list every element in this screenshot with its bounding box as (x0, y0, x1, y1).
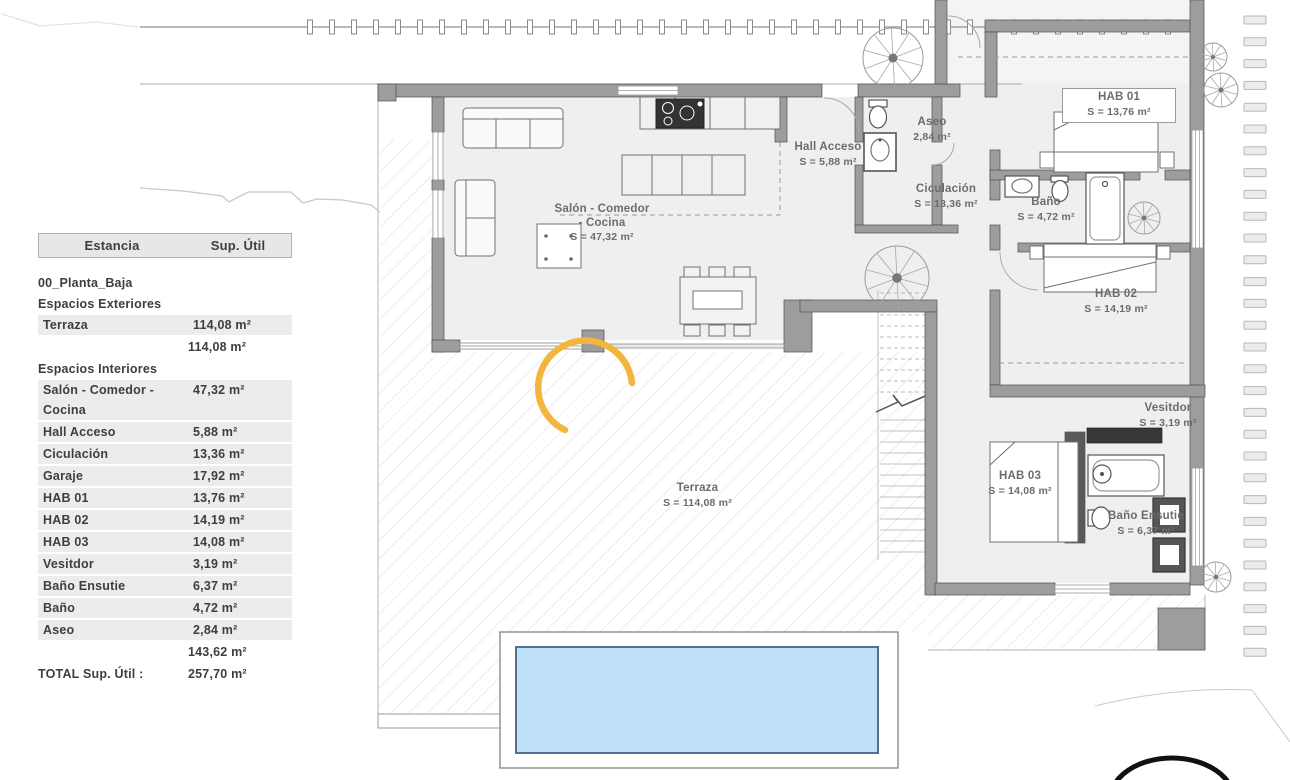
room-label-hab01: HAB 01 S = 13,76 m² (1062, 88, 1176, 123)
fence-post (858, 20, 863, 34)
fence-post (704, 20, 709, 34)
table-group-title: Espacios Exteriores (38, 294, 292, 315)
row-value: 14,19 m² (185, 510, 292, 530)
room-name: Baño Ensutie (1098, 510, 1194, 524)
fence-post (836, 20, 841, 34)
table-row: HAB 0314,08 m² (38, 532, 292, 552)
stepping-stone (1244, 539, 1266, 547)
row-value: 5,88 m² (185, 422, 292, 442)
room-area: S = 4,72 m² (1008, 211, 1084, 225)
terrain-contour-lines (2, 14, 380, 212)
row-value: 2,84 m² (185, 620, 292, 640)
room-area: S = 47,32 m² (552, 231, 652, 245)
row-name: Salón - Comedor - Cocina (38, 380, 185, 420)
room-name: Ciculación (898, 183, 994, 197)
row-value: 14,08 m² (185, 532, 292, 552)
fence-post (638, 20, 643, 34)
room-name: Baño (1008, 196, 1084, 210)
row-name: Baño (38, 598, 185, 618)
subtotal-value: 114,08 m² (180, 337, 292, 357)
tree-icon (1204, 73, 1238, 107)
fence-post (308, 20, 313, 34)
stepping-stone (1244, 278, 1266, 286)
room-label-salon: Salón - Comedor - Cocina S = 47,32 m² (552, 203, 652, 245)
room-area: S = 14,08 m² (970, 485, 1070, 499)
row-value: 3,19 m² (185, 554, 292, 574)
row-name: HAB 01 (38, 488, 185, 508)
fence-post (396, 20, 401, 34)
total-value: 257,70 m² (180, 664, 292, 685)
sliding-door (604, 344, 784, 348)
room-area: S = 14,19 m² (1060, 303, 1172, 317)
fence-post (902, 20, 907, 34)
table-header-estancia: Estancia (39, 238, 185, 253)
tree-icon (1201, 562, 1231, 592)
stepping-stone (1244, 147, 1266, 155)
table-header-sup-util: Sup. Útil (185, 238, 291, 253)
stepping-stone (1244, 605, 1266, 613)
fence-post (726, 20, 731, 34)
fence-post (528, 20, 533, 34)
table-row: Baño4,72 m² (38, 598, 292, 618)
table-subtotal-row: 143,62 m² (38, 642, 292, 662)
room-label-terraza: Terraza S = 114,08 m² (640, 482, 755, 510)
stepping-stone (1244, 408, 1266, 416)
fence-post (572, 20, 577, 34)
room-name: Terraza (640, 482, 755, 496)
stepping-stone (1244, 38, 1266, 46)
room-area: 2,84 m² (902, 131, 962, 145)
row-value: 13,36 m² (185, 444, 292, 464)
fence-post (660, 20, 665, 34)
row-name: Terraza (38, 315, 185, 335)
row-value: 47,32 m² (185, 380, 292, 420)
room-name: Salón - Comedor - Cocina (552, 203, 652, 230)
stepping-stone (1244, 256, 1266, 264)
fence-post (616, 20, 621, 34)
room-label-hall-acceso: Hall Acceso S = 5,88 m² (786, 141, 870, 169)
stepping-stone (1244, 474, 1266, 482)
stepping-stone (1244, 103, 1266, 111)
total-label: TOTAL Sup. Útil : (38, 664, 180, 685)
row-value: 114,08 m² (185, 315, 292, 335)
kitchen-counter (622, 155, 745, 195)
room-name: HAB 02 (1060, 288, 1172, 302)
row-value: 17,92 m² (185, 466, 292, 486)
fence-post (330, 20, 335, 34)
wardrobe (1087, 428, 1162, 443)
landscape-ellipse (1095, 690, 1290, 780)
fence-post (484, 20, 489, 34)
stepping-stone (1244, 81, 1266, 89)
table-total-row: TOTAL Sup. Útil : 257,70 m² (38, 664, 292, 685)
row-name: Ciculación (38, 444, 185, 464)
row-value: 6,37 m² (185, 576, 292, 596)
stepping-stone (1244, 16, 1266, 24)
table-row: Aseo2,84 m² (38, 620, 292, 640)
room-name: HAB 01 (1063, 91, 1175, 105)
table-row: Ciculación13,36 m² (38, 444, 292, 464)
stepping-stone (1244, 583, 1266, 591)
table-row: Salón - Comedor - Cocina47,32 m² (38, 380, 292, 420)
room-area: S = 6,37 m² (1098, 525, 1194, 539)
stepping-stone (1244, 321, 1266, 329)
room-area: S = 13,36 m² (898, 198, 994, 212)
fence-post (792, 20, 797, 34)
table-row: HAB 0113,76 m² (38, 488, 292, 508)
stepping-stone (1244, 212, 1266, 220)
fence-post (506, 20, 511, 34)
stepping-stone (1244, 60, 1266, 68)
floor-plan-page: Salón - Comedor - Cocina S = 47,32 m² Ha… (0, 0, 1290, 780)
stepping-stone (1244, 343, 1266, 351)
stepping-stone (1244, 365, 1266, 373)
stepping-stone (1244, 648, 1266, 656)
sofa-large (463, 108, 563, 148)
row-name: Aseo (38, 620, 185, 640)
stepping-stone (1244, 430, 1266, 438)
fence-post (924, 20, 929, 34)
fence-post (814, 20, 819, 34)
stepping-stone (1244, 452, 1266, 460)
table-row: HAB 0214,19 m² (38, 510, 292, 530)
fence-post (682, 20, 687, 34)
fence-post (440, 20, 445, 34)
toilet-aseo (870, 106, 887, 128)
fence-post (418, 20, 423, 34)
table-group-title: Espacios Interiores (38, 359, 292, 380)
room-label-ciculacion: Ciculación S = 13,36 m² (898, 183, 994, 211)
fence-post (352, 20, 357, 34)
fence-post (748, 20, 753, 34)
bed-hab02 (1044, 244, 1156, 292)
stepping-stone (1244, 234, 1266, 242)
stepping-stone (1244, 496, 1266, 504)
table-header: Estancia Sup. Útil (38, 233, 292, 258)
stepping-stone (1244, 299, 1266, 307)
room-label-hab02: HAB 02 S = 14,19 m² (1060, 288, 1172, 316)
row-name: Hall Acceso (38, 422, 185, 442)
stepping-stones-path (1244, 16, 1266, 656)
room-label-bano: Baño S = 4,72 m² (1008, 196, 1084, 224)
table-row: Vesitdor3,19 m² (38, 554, 292, 574)
stepping-stone (1244, 517, 1266, 525)
row-name: HAB 03 (38, 532, 185, 552)
row-name: Garaje (38, 466, 185, 486)
room-name: Hall Acceso (786, 141, 870, 155)
row-name: HAB 02 (38, 510, 185, 530)
stepping-stone (1244, 626, 1266, 634)
row-name: Vesitdor (38, 554, 185, 574)
row-value: 4,72 m² (185, 598, 292, 618)
pool-water (516, 647, 878, 753)
stepping-stone (1244, 125, 1266, 133)
fence-post (374, 20, 379, 34)
fence-post (550, 20, 555, 34)
fence-post (462, 20, 467, 34)
table-row: Hall Acceso5,88 m² (38, 422, 292, 442)
fence-post (880, 20, 885, 34)
stepping-stone (1244, 169, 1266, 177)
room-label-aseo: Aseo 2,84 m² (902, 116, 962, 144)
room-label-hab03: HAB 03 S = 14,08 m² (970, 470, 1070, 498)
stepping-stone (1244, 561, 1266, 569)
tree-icon (863, 28, 923, 88)
pool-walkway (378, 714, 502, 728)
room-label-bano-ensuite: Baño Ensutie S = 6,37 m² (1098, 510, 1194, 538)
plan-title: 00_Planta_Baja (38, 273, 292, 294)
room-area: S = 13,76 m² (1063, 106, 1175, 120)
table-subtotal-row: 114,08 m² (38, 337, 292, 357)
shower-bano (1086, 173, 1124, 244)
stepping-stone (1244, 387, 1266, 395)
row-name: Baño Ensutie (38, 576, 185, 596)
area-summary-table: Estancia Sup. Útil 00_Planta_Baja Espaci… (38, 233, 292, 685)
room-name: HAB 03 (970, 470, 1070, 484)
room-name: Vesitdor (1130, 402, 1206, 416)
table-row: Baño Ensutie6,37 m² (38, 576, 292, 596)
fence-post (770, 20, 775, 34)
table-row: Garaje17,92 m² (38, 466, 292, 486)
stepping-stone (1244, 190, 1266, 198)
row-value: 13,76 m² (185, 488, 292, 508)
subtotal-value: 143,62 m² (180, 642, 292, 662)
room-label-vesitdor: Vesitdor S = 3,19 m² (1130, 402, 1206, 430)
room-area: S = 3,19 m² (1130, 417, 1206, 431)
room-name: Aseo (902, 116, 962, 130)
table-row: Terraza114,08 m² (38, 315, 292, 335)
room-area: S = 114,08 m² (640, 497, 755, 511)
fence-post (594, 20, 599, 34)
room-area: S = 5,88 m² (786, 156, 870, 170)
